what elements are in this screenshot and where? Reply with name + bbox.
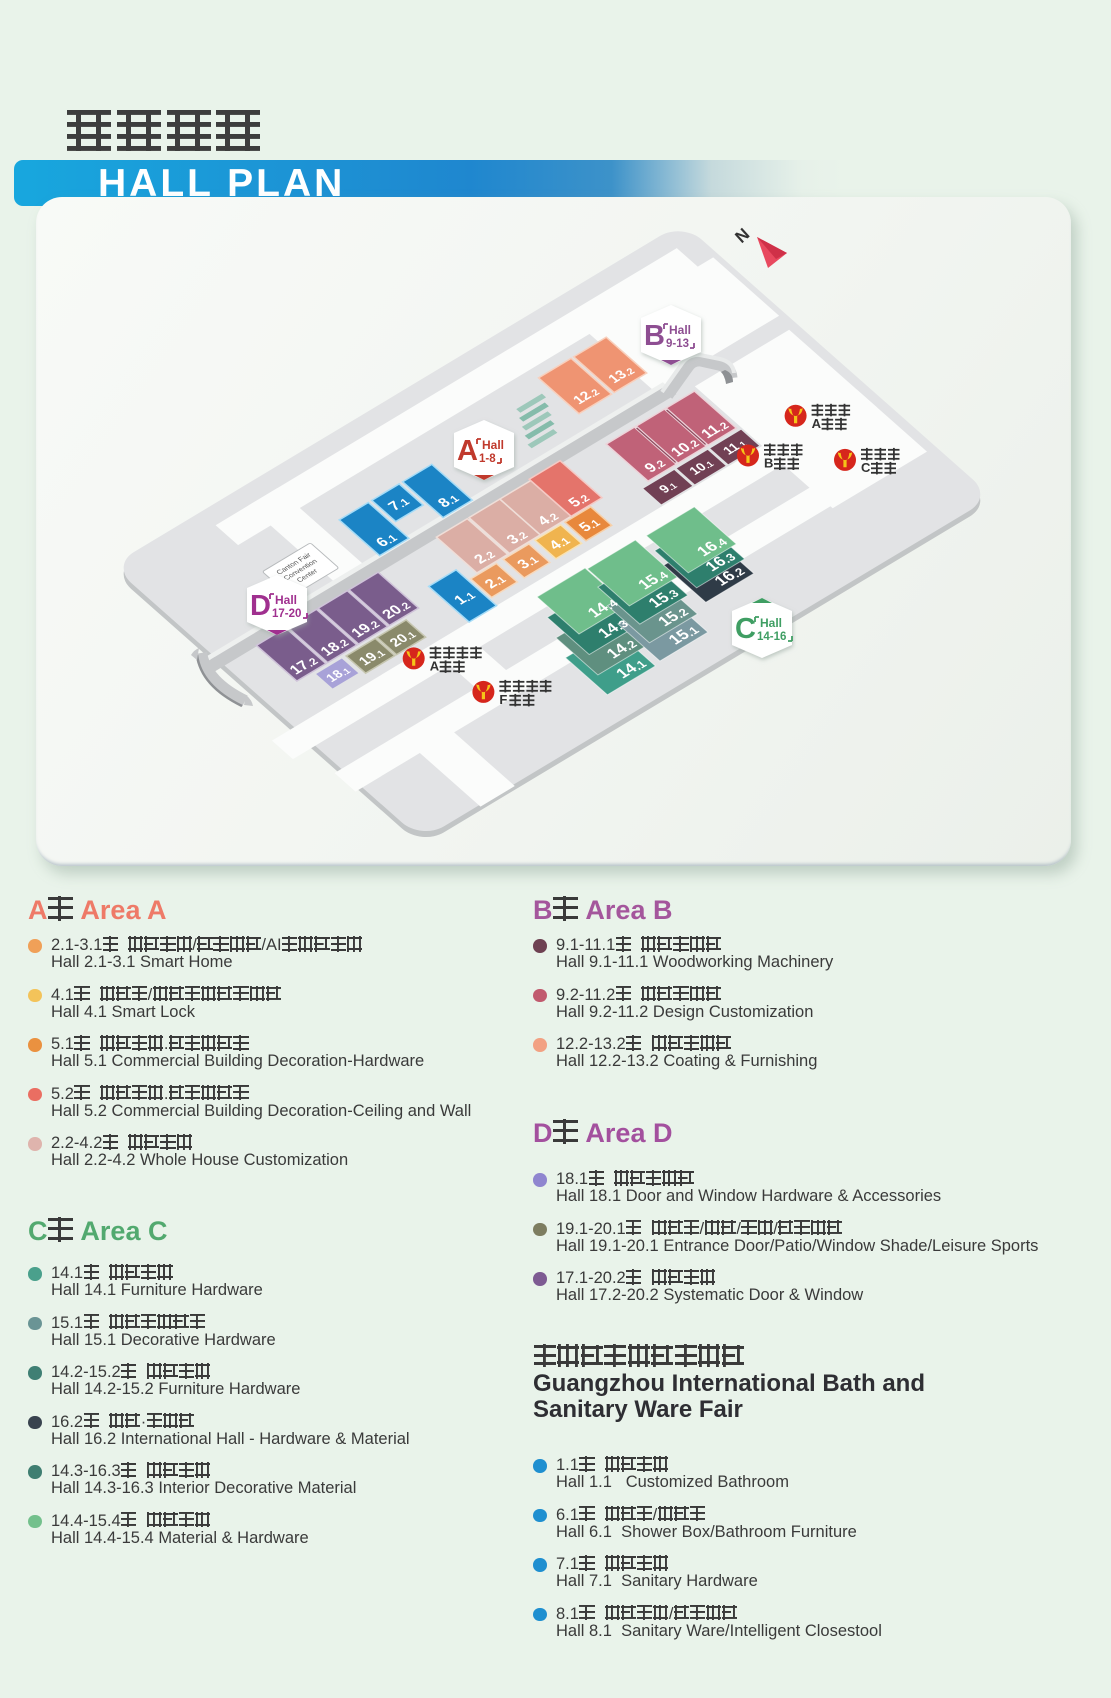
svg-text:Hall: Hall [275,593,297,607]
svg-text:Hall: Hall [482,438,504,452]
svg-text:D: D [250,590,271,622]
svg-text:Hall: Hall [760,616,782,630]
svg-text:F: F [499,692,507,707]
svg-text:A: A [430,658,440,673]
svg-text:A: A [812,416,822,431]
svg-text:B: B [764,456,773,471]
svg-text:17-20: 17-20 [272,608,301,620]
svg-text:A: A [457,435,478,467]
svg-text:9-13: 9-13 [666,338,689,350]
svg-text:B: B [644,320,665,352]
svg-text:Hall: Hall [669,323,691,337]
svg-text:14-16: 14-16 [757,631,786,643]
svg-text:N: N [731,225,753,247]
svg-text:C: C [735,613,756,645]
svg-text:1-8: 1-8 [479,453,496,465]
svg-text:C: C [861,460,871,475]
